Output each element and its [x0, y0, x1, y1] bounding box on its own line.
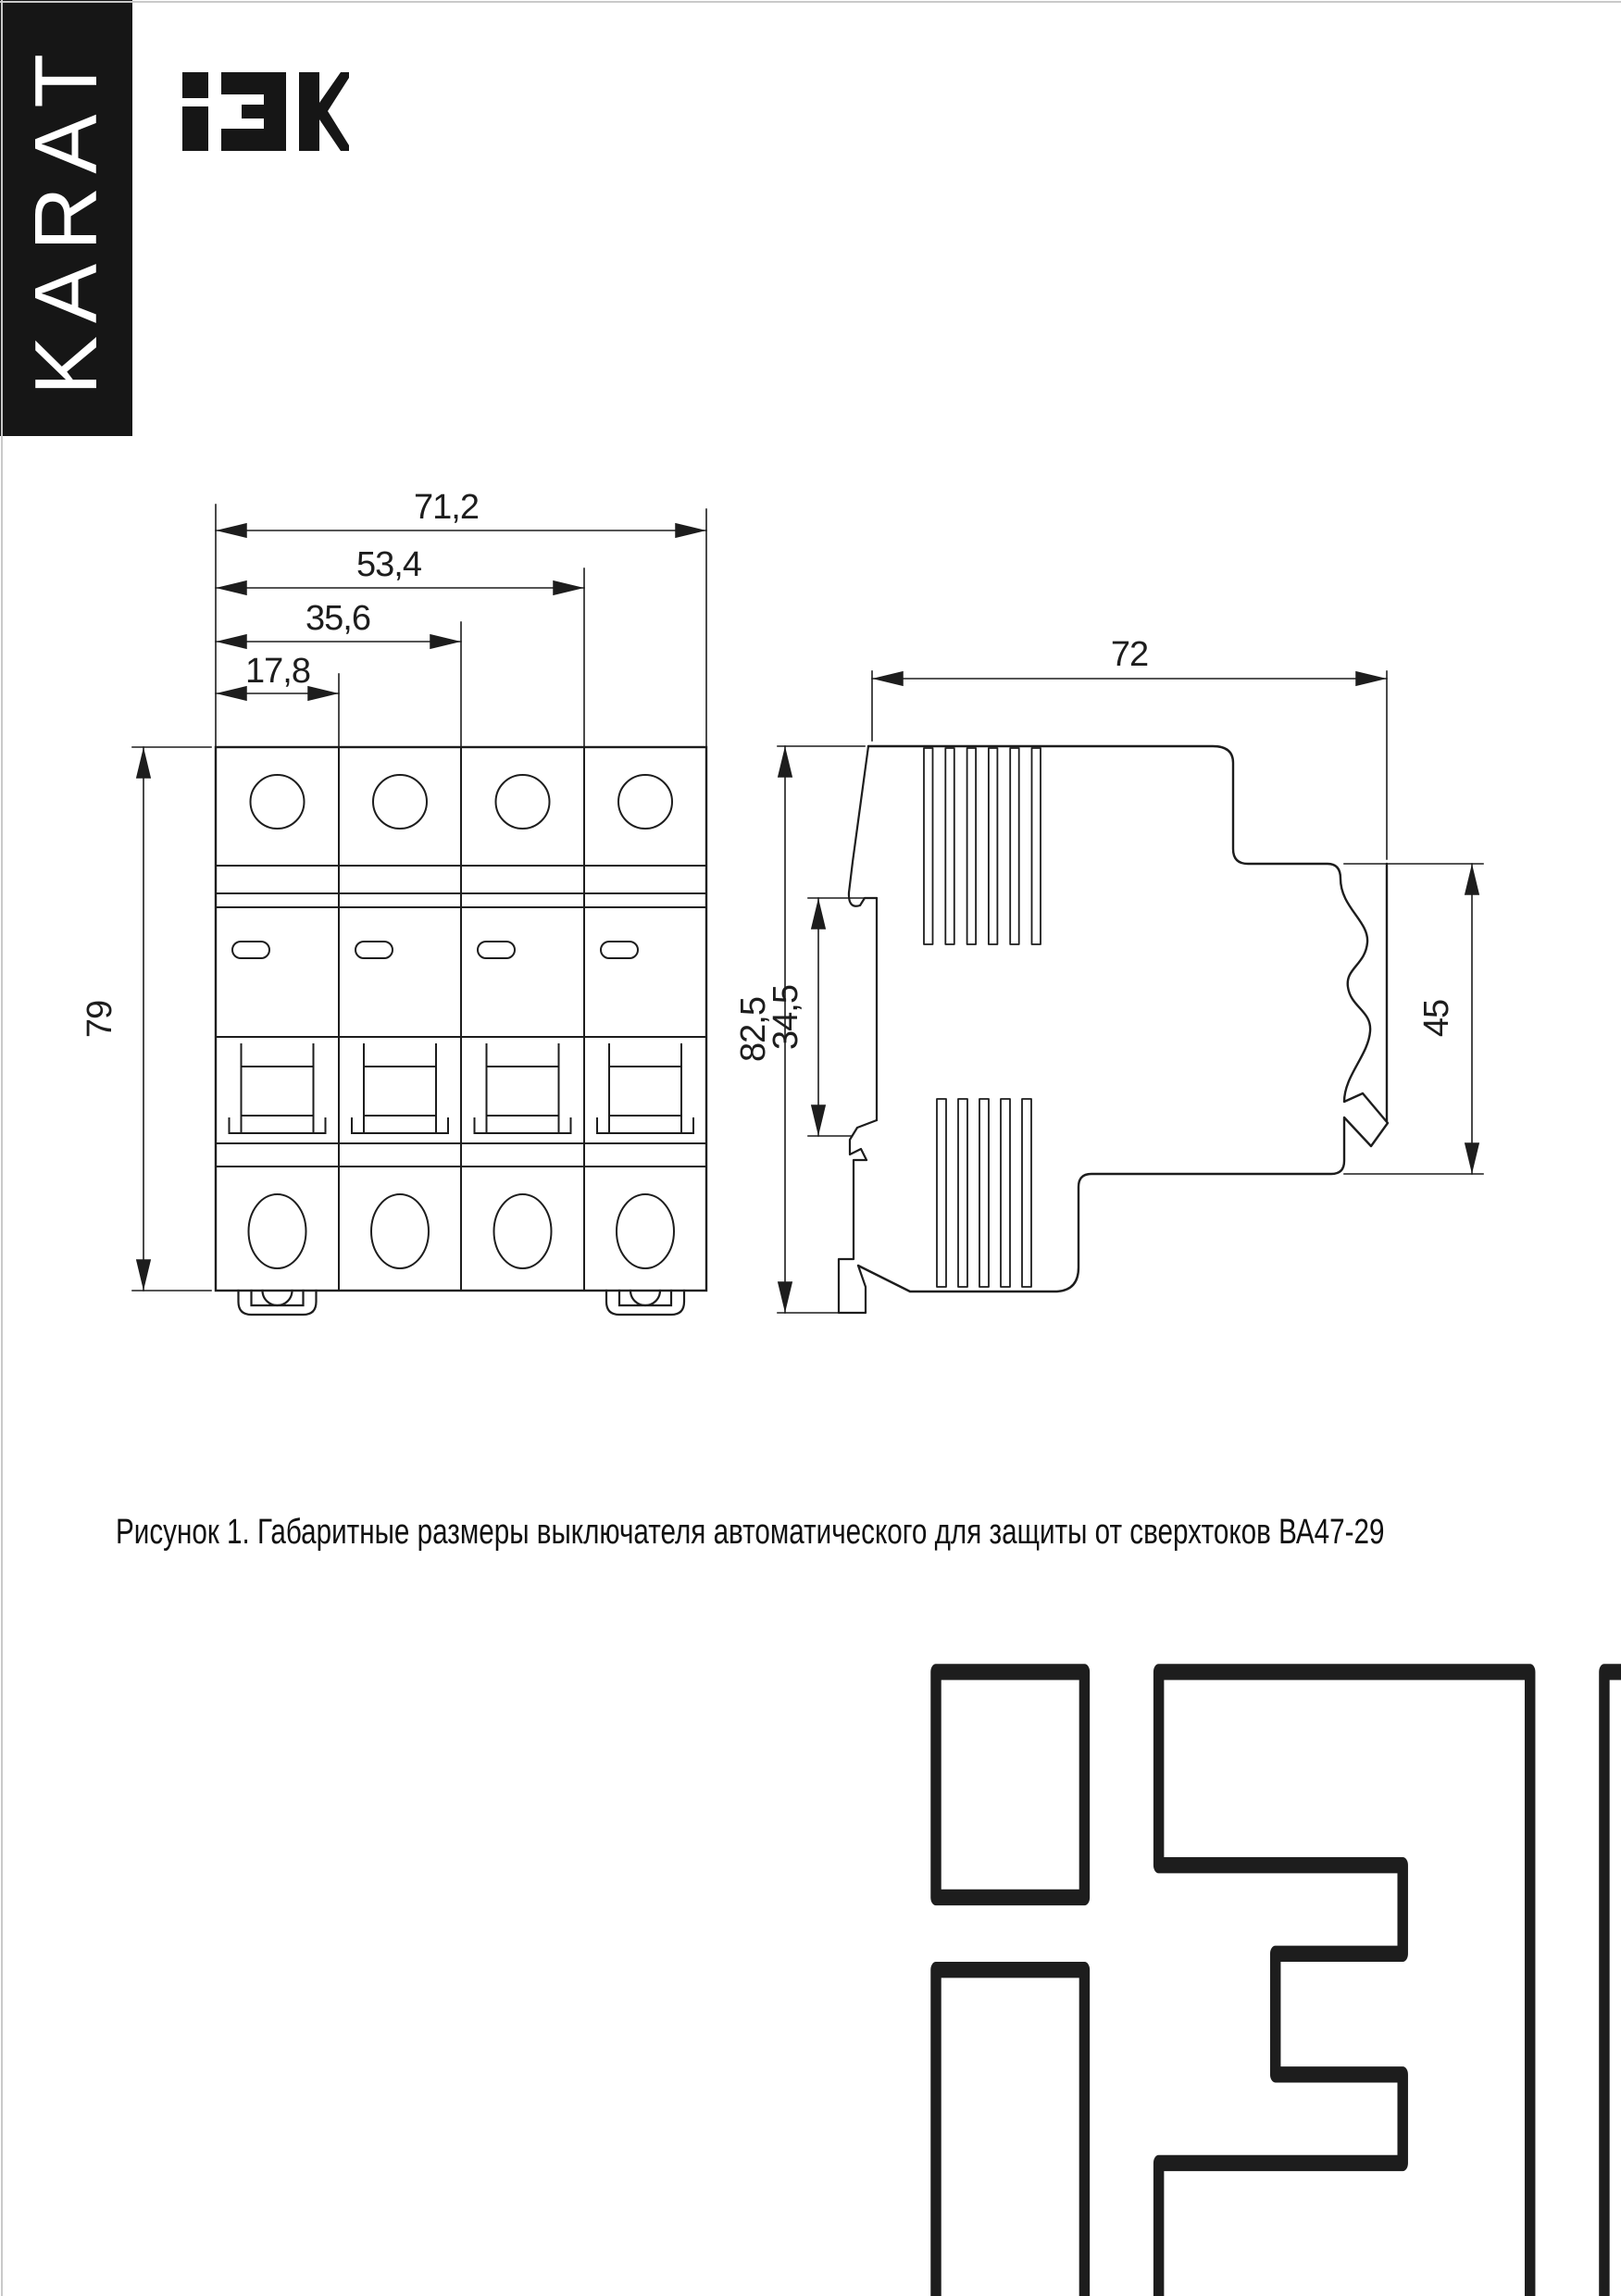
front-dimension-labels: 71,2 53,4 35,6 17,8 79 [81, 488, 479, 1038]
dim-label-45: 45 [1417, 1000, 1456, 1037]
front-din-clips [239, 1291, 685, 1315]
dimension-drawing: 71,2 53,4 35,6 17,8 79 [0, 0, 1621, 2296]
front-oval-slots [232, 942, 638, 958]
front-dimension-lines [132, 505, 706, 1291]
front-module-separators [339, 747, 584, 1291]
dim-label-35-6: 35,6 [305, 599, 370, 638]
dim-label-34-5: 34,5 [767, 985, 805, 1050]
side-iek-logo-emboss [936, 1672, 1621, 2296]
side-dimension-lines [778, 671, 1483, 1313]
side-view: 72 82,5 34,5 45 [734, 635, 1621, 2296]
datasheet-page: KARAT Рисунок 1. Габаритные размеры выкл… [0, 0, 1621, 2296]
dim-label-72: 72 [1111, 635, 1148, 674]
front-view: 71,2 53,4 35,6 17,8 79 [81, 488, 706, 1315]
dim-label-71-2: 71,2 [414, 488, 479, 527]
side-dimension-labels: 72 82,5 34,5 45 [734, 635, 1456, 1062]
dim-label-53-4: 53,4 [356, 545, 422, 584]
iek-logo [182, 72, 349, 151]
dim-label-17-8: 17,8 [245, 652, 310, 691]
side-vent-slots-upper [924, 748, 1041, 944]
side-din-profile [839, 746, 877, 1313]
side-vent-slots-lower [937, 1099, 1031, 1287]
dim-label-79: 79 [81, 1001, 119, 1038]
